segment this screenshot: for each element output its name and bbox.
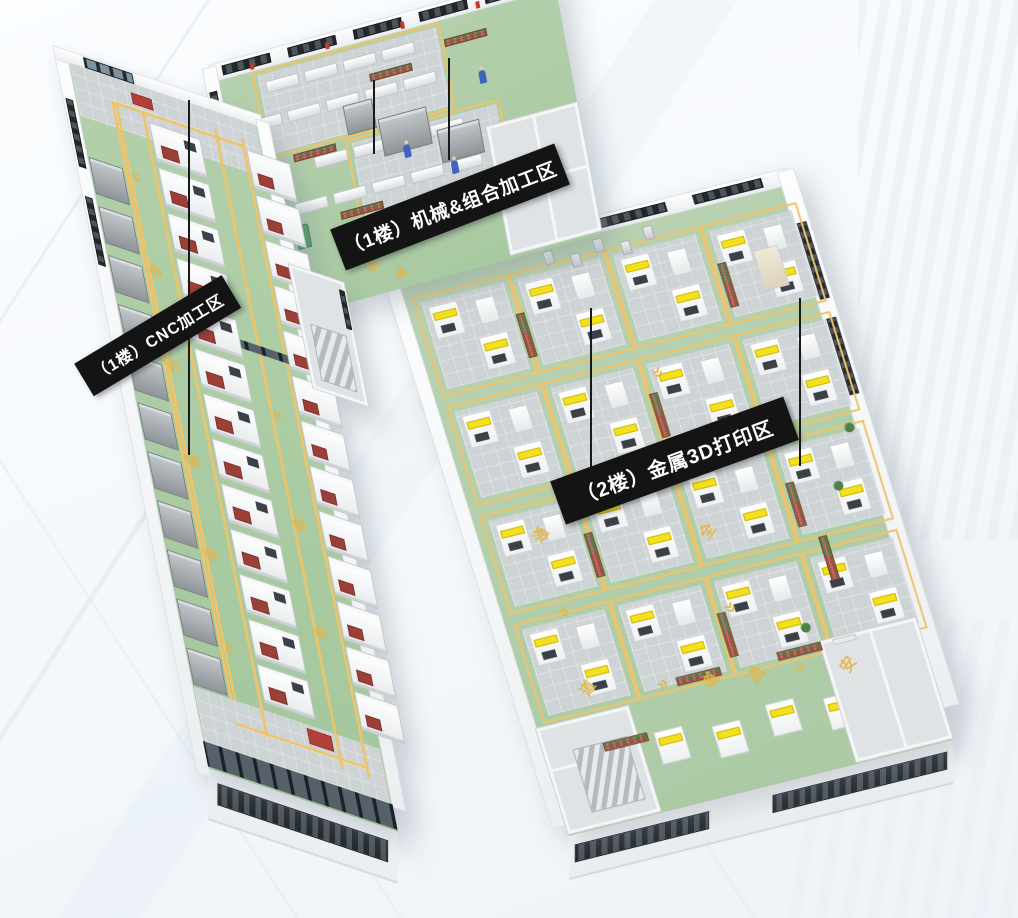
cnc-machine-panel	[320, 489, 338, 506]
printer-window	[880, 608, 896, 619]
worker-head	[451, 156, 456, 161]
printer-window	[796, 468, 812, 479]
printer-window	[537, 299, 553, 310]
leader-line-machining-1	[373, 80, 375, 154]
cnc-machine-screen	[246, 456, 259, 469]
printer-window	[813, 390, 829, 401]
factory-3d-overview: «安全«通«道«道通«安 «««通道 «安全通道««通道 （1楼）CNC加工区 …	[0, 0, 1018, 918]
cnc-machine-screen	[201, 230, 214, 243]
printer-top-band	[500, 525, 525, 538]
cnc-machine-screen	[237, 411, 250, 424]
printer-top-band	[776, 617, 801, 630]
cnc-machine-screen	[255, 501, 268, 514]
printer-top-band	[625, 260, 650, 273]
cnc-machine-screen	[282, 637, 295, 650]
cnc-machine-panel	[356, 670, 374, 687]
printer-window	[847, 499, 863, 510]
floor-marking-char: 道	[306, 618, 335, 646]
cnc-machine-panel	[223, 461, 243, 479]
cnc-machine-screen	[291, 682, 304, 695]
printer-top-band	[675, 290, 700, 303]
printer-top-band	[716, 727, 741, 740]
printer-window	[541, 649, 557, 660]
printer-top-band	[721, 236, 746, 249]
cnc-machine-screen	[228, 366, 241, 379]
cnc-machine-panel	[214, 416, 234, 434]
chevron-marking: «	[216, 635, 244, 661]
cnc-machine-screen	[273, 591, 286, 604]
metal-3d-printer	[711, 719, 750, 759]
small-robot	[642, 225, 656, 241]
cnc-machine-panel	[302, 399, 320, 416]
printer-top-band	[754, 345, 779, 358]
printer-window	[525, 462, 541, 473]
cnc-machine-panel	[170, 190, 190, 208]
metal-3d-printer	[764, 698, 803, 738]
printer-top-band	[629, 610, 654, 623]
printer-top-band	[709, 399, 734, 412]
printer-window	[655, 547, 671, 558]
printer-window	[666, 383, 682, 394]
printer-window	[559, 571, 575, 582]
metal-3d-printer	[653, 725, 692, 765]
leader-line-printing-2	[799, 298, 801, 466]
worker-head	[403, 140, 408, 145]
worker-figure	[478, 70, 487, 85]
printer-window	[784, 632, 800, 643]
printer-top-band	[562, 393, 587, 406]
printer-window	[508, 540, 524, 551]
floor-marking-char: 道	[387, 259, 414, 287]
cnc-machine-panel	[268, 687, 288, 705]
printer-top-band	[769, 705, 794, 718]
room-divider	[869, 632, 907, 747]
cnc-machine-panel	[338, 579, 356, 596]
cnc-machine-panel	[205, 371, 225, 389]
chevron-marking: «	[264, 404, 291, 429]
printer-window	[700, 492, 716, 503]
printer-top-band	[872, 593, 897, 606]
printer-window	[604, 516, 620, 527]
planter-box	[444, 28, 488, 47]
cnc-machine-panel	[259, 642, 279, 660]
floor-marking-char: 通	[284, 510, 313, 538]
printer-top-band	[466, 417, 491, 430]
cnc-machine-screen	[264, 546, 277, 559]
printer-window	[637, 625, 653, 636]
worker-head	[479, 66, 484, 71]
cnc-machine-panel	[241, 551, 261, 569]
printer-top-band	[692, 477, 717, 490]
printer-window	[570, 407, 586, 418]
cnc-machine-panel	[161, 145, 181, 163]
printer-window	[751, 523, 767, 534]
cnc-machine-panel	[257, 173, 275, 190]
printer-window	[688, 656, 704, 667]
printer-top-band	[483, 338, 508, 351]
cnc-machine-panel	[347, 624, 365, 641]
stairs	[310, 324, 357, 393]
printer-window	[762, 359, 778, 370]
printer-top-band	[680, 641, 705, 654]
leader-line-printing-1	[590, 308, 592, 480]
printer-top-band	[658, 733, 683, 746]
printer-window	[633, 275, 649, 286]
cnc-machine-screen	[192, 185, 205, 198]
leader-line-machining-2	[448, 58, 450, 160]
printer-top-band	[533, 634, 558, 647]
room-divider	[552, 763, 578, 772]
cnc-machine-panel	[250, 597, 270, 615]
printer-top-band	[647, 532, 672, 545]
printer-top-band	[743, 508, 768, 521]
printer-window	[441, 323, 457, 334]
cnc-machine-panel	[329, 534, 347, 551]
cnc-machine-screen	[184, 140, 197, 153]
printer-top-band	[551, 556, 576, 569]
printer-window	[683, 305, 699, 316]
small-robot	[592, 237, 606, 253]
printer-window	[729, 251, 745, 262]
printer-window	[491, 353, 507, 364]
small-robot	[542, 250, 556, 266]
cnc-machine-panel	[266, 218, 284, 235]
printer-top-band	[529, 284, 554, 297]
printer-top-band	[805, 375, 830, 388]
printer-top-band	[613, 423, 638, 436]
printer-top-band	[579, 314, 604, 327]
printer-window	[474, 431, 490, 442]
printer-top-band	[433, 308, 458, 321]
leader-line-cnc	[188, 100, 190, 455]
cnc-machine-screen	[219, 321, 232, 334]
cnc-machine-panel	[365, 715, 383, 732]
printer-top-band	[517, 447, 542, 460]
cnc-machine-panel	[311, 444, 329, 461]
cnc-machine-panel	[232, 506, 252, 524]
printer-window	[621, 438, 637, 449]
